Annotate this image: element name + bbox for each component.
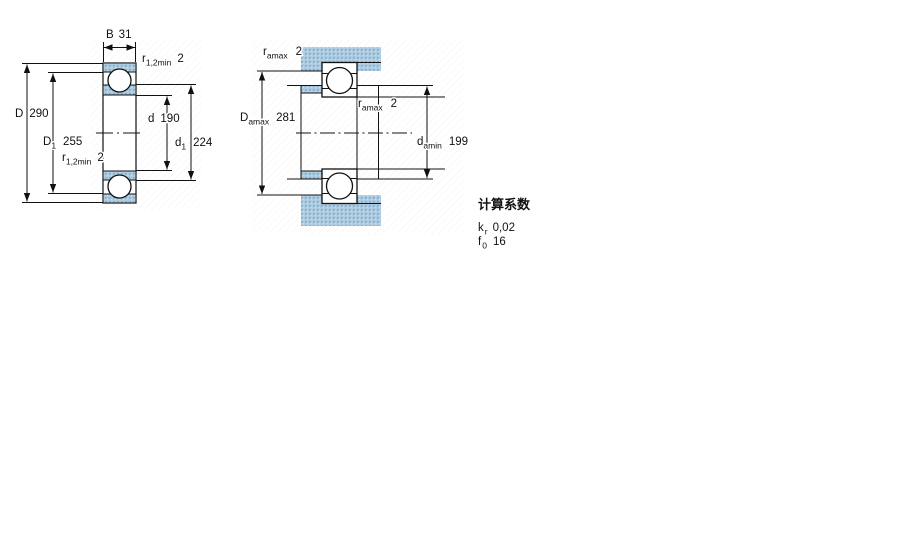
technical-drawing-canvas: B31 r1,2min2 D290 D1255 r1,2min2 d190 d1… bbox=[0, 0, 900, 560]
dim-label-d: d190 bbox=[148, 113, 180, 125]
ball-bottom-right-figure bbox=[327, 173, 353, 199]
shaft-shoulder-bottom bbox=[301, 171, 322, 179]
dim-label-B: B31 bbox=[106, 29, 131, 41]
mounting-dimensions-figure: ramax2 Damax281 ramax2 damin199 bbox=[240, 40, 468, 234]
dim-label-D1: D1255 bbox=[43, 136, 82, 151]
shaft-shoulder-top bbox=[301, 85, 322, 93]
factor-f0: f016 bbox=[478, 236, 506, 251]
bearing-drawing-page: { "colors": { "hatch_base": "#adcce2", "… bbox=[0, 0, 900, 560]
ball-bottom bbox=[108, 175, 131, 198]
dim-label-D: D290 bbox=[15, 108, 49, 120]
ball-top bbox=[108, 69, 131, 92]
bearing-section-figure: B31 r1,2min2 D290 D1255 r1,2min2 d190 d1… bbox=[15, 29, 213, 210]
calculation-factors-title: 计算系数 bbox=[478, 197, 531, 212]
calculation-factors-block: 计算系数 kr0,02 f016 bbox=[478, 197, 531, 251]
ball-top-right-figure bbox=[327, 68, 353, 94]
factor-kr: kr0,02 bbox=[478, 222, 515, 237]
